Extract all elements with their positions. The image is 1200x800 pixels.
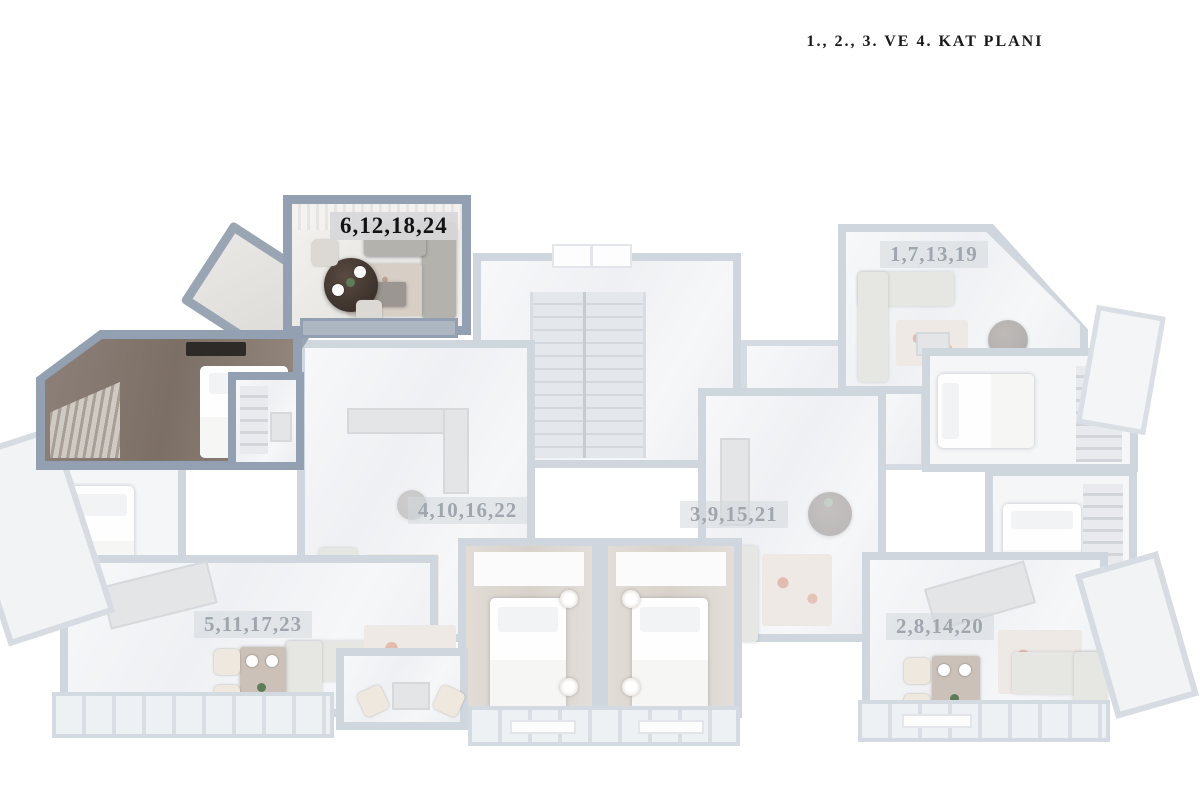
unit-6-tv-panel bbox=[186, 342, 246, 356]
page-title: 1., 2., 3. VE 4. KAT PLANI bbox=[690, 33, 1160, 51]
window-pane-divider bbox=[590, 246, 593, 266]
terrace-right-upper bbox=[1076, 305, 1166, 435]
unit-label-6-12-18-24: 6,12,18,24 bbox=[330, 212, 458, 240]
balcony-seating bbox=[336, 648, 468, 730]
unit-3-rug bbox=[762, 554, 832, 626]
unit-1-sofa-side bbox=[858, 272, 888, 382]
unit-label-3-9-15-21: 3,9,15,21 bbox=[680, 501, 788, 528]
floor-plan-canvas: 1., 2., 3. VE 4. KAT PLANI bbox=[0, 0, 1200, 800]
right-bedroom-upper-bed bbox=[938, 374, 1034, 448]
balcony-bottom-left bbox=[52, 692, 334, 738]
staircase bbox=[530, 292, 646, 458]
balcony-table bbox=[392, 682, 430, 710]
balcony-bottom-center bbox=[468, 706, 740, 746]
center-bedroom-left bbox=[458, 538, 600, 718]
stair-divider bbox=[583, 292, 586, 458]
unit-6-closet-bench bbox=[270, 412, 292, 442]
center-bedroom-right-bed bbox=[632, 598, 708, 710]
unit-label-2-8-14-20: 2,8,14,20 bbox=[886, 613, 994, 640]
unit-label-5-11-17-23: 5,11,17,23 bbox=[194, 611, 312, 638]
unit-6-closet bbox=[228, 372, 304, 470]
unit-4-kitchen-counter-side bbox=[443, 408, 469, 494]
unit-3-dining-table bbox=[808, 492, 852, 536]
center-bedroom-right bbox=[600, 538, 742, 718]
unit-label-1-7-13-19: 1,7,13,19 bbox=[880, 241, 988, 268]
unit-label-4-10-16-22: 4,10,16,22 bbox=[408, 497, 527, 524]
unit-6-closet-shelves bbox=[240, 386, 268, 454]
balcony-bottom-right bbox=[858, 700, 1110, 742]
unit-6-balcony bbox=[300, 318, 458, 338]
center-bedroom-left-bed bbox=[490, 598, 566, 710]
